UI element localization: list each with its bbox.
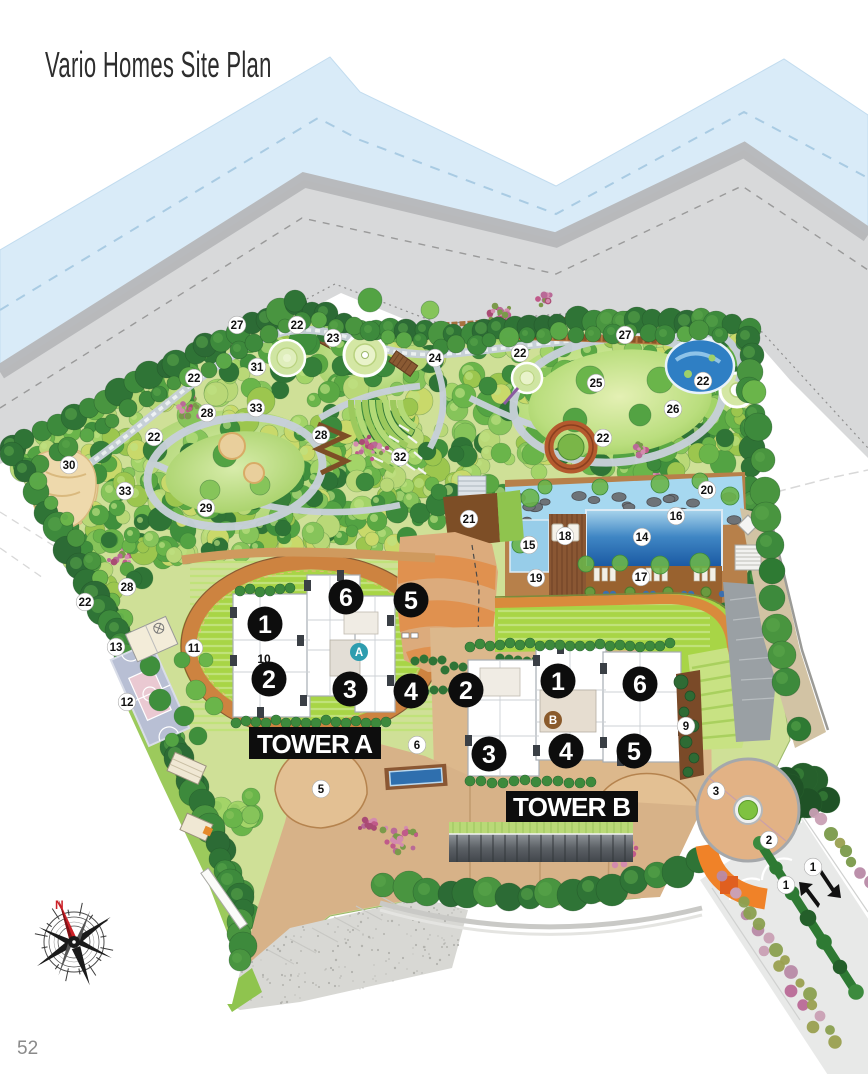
- svg-text:TOWER A: TOWER A: [257, 729, 373, 759]
- svg-text:27: 27: [231, 320, 244, 332]
- svg-text:27: 27: [619, 330, 632, 342]
- svg-text:22: 22: [514, 348, 527, 360]
- svg-text:22: 22: [597, 433, 610, 445]
- svg-text:9: 9: [683, 721, 689, 733]
- svg-text:2: 2: [459, 677, 473, 705]
- svg-text:19: 19: [530, 573, 543, 585]
- svg-text:28: 28: [315, 430, 328, 442]
- svg-text:A: A: [355, 647, 363, 659]
- svg-text:23: 23: [327, 333, 340, 345]
- svg-text:28: 28: [201, 408, 214, 420]
- svg-text:15: 15: [523, 540, 536, 552]
- svg-text:3: 3: [343, 676, 357, 704]
- svg-text:18: 18: [559, 531, 572, 543]
- svg-text:5: 5: [627, 738, 641, 766]
- svg-text:6: 6: [414, 740, 420, 752]
- svg-text:2: 2: [262, 666, 276, 694]
- svg-text:2: 2: [766, 835, 772, 847]
- svg-text:24: 24: [429, 353, 442, 365]
- svg-text:13: 13: [110, 642, 123, 654]
- svg-text:22: 22: [697, 376, 710, 388]
- svg-text:26: 26: [667, 404, 680, 416]
- svg-text:29: 29: [200, 503, 213, 515]
- svg-text:52: 52: [17, 1038, 38, 1059]
- svg-text:12: 12: [121, 697, 134, 709]
- svg-text:6: 6: [633, 671, 647, 699]
- svg-text:31: 31: [251, 362, 264, 374]
- svg-text:3: 3: [713, 786, 719, 798]
- svg-text:16: 16: [670, 511, 683, 523]
- svg-text:5: 5: [404, 587, 418, 615]
- svg-text:1: 1: [810, 862, 817, 874]
- svg-text:22: 22: [148, 432, 161, 444]
- svg-text:N: N: [55, 898, 64, 912]
- svg-text:5: 5: [318, 784, 325, 796]
- svg-text:25: 25: [590, 378, 603, 390]
- svg-text:6: 6: [339, 584, 353, 612]
- svg-text:TOWER B: TOWER B: [513, 792, 631, 822]
- svg-text:4: 4: [404, 678, 418, 706]
- svg-text:22: 22: [291, 320, 304, 332]
- svg-text:17: 17: [635, 572, 648, 584]
- svg-text:22: 22: [188, 373, 201, 385]
- svg-text:32: 32: [394, 452, 407, 464]
- svg-text:11: 11: [188, 643, 201, 655]
- svg-text:Vario Homes Site Plan: Vario Homes Site Plan: [45, 46, 272, 86]
- svg-text:28: 28: [121, 582, 134, 594]
- svg-text:33: 33: [250, 403, 263, 415]
- svg-text:1: 1: [551, 668, 565, 696]
- svg-text:1: 1: [258, 611, 272, 639]
- svg-text:3: 3: [482, 741, 496, 769]
- svg-text:33: 33: [119, 486, 132, 498]
- svg-text:21: 21: [463, 514, 476, 526]
- svg-text:14: 14: [636, 532, 649, 544]
- svg-text:30: 30: [63, 460, 76, 472]
- svg-text:B: B: [549, 715, 557, 727]
- svg-text:1: 1: [783, 880, 790, 892]
- svg-text:22: 22: [79, 597, 92, 609]
- svg-text:20: 20: [701, 485, 714, 497]
- svg-text:4: 4: [559, 738, 573, 766]
